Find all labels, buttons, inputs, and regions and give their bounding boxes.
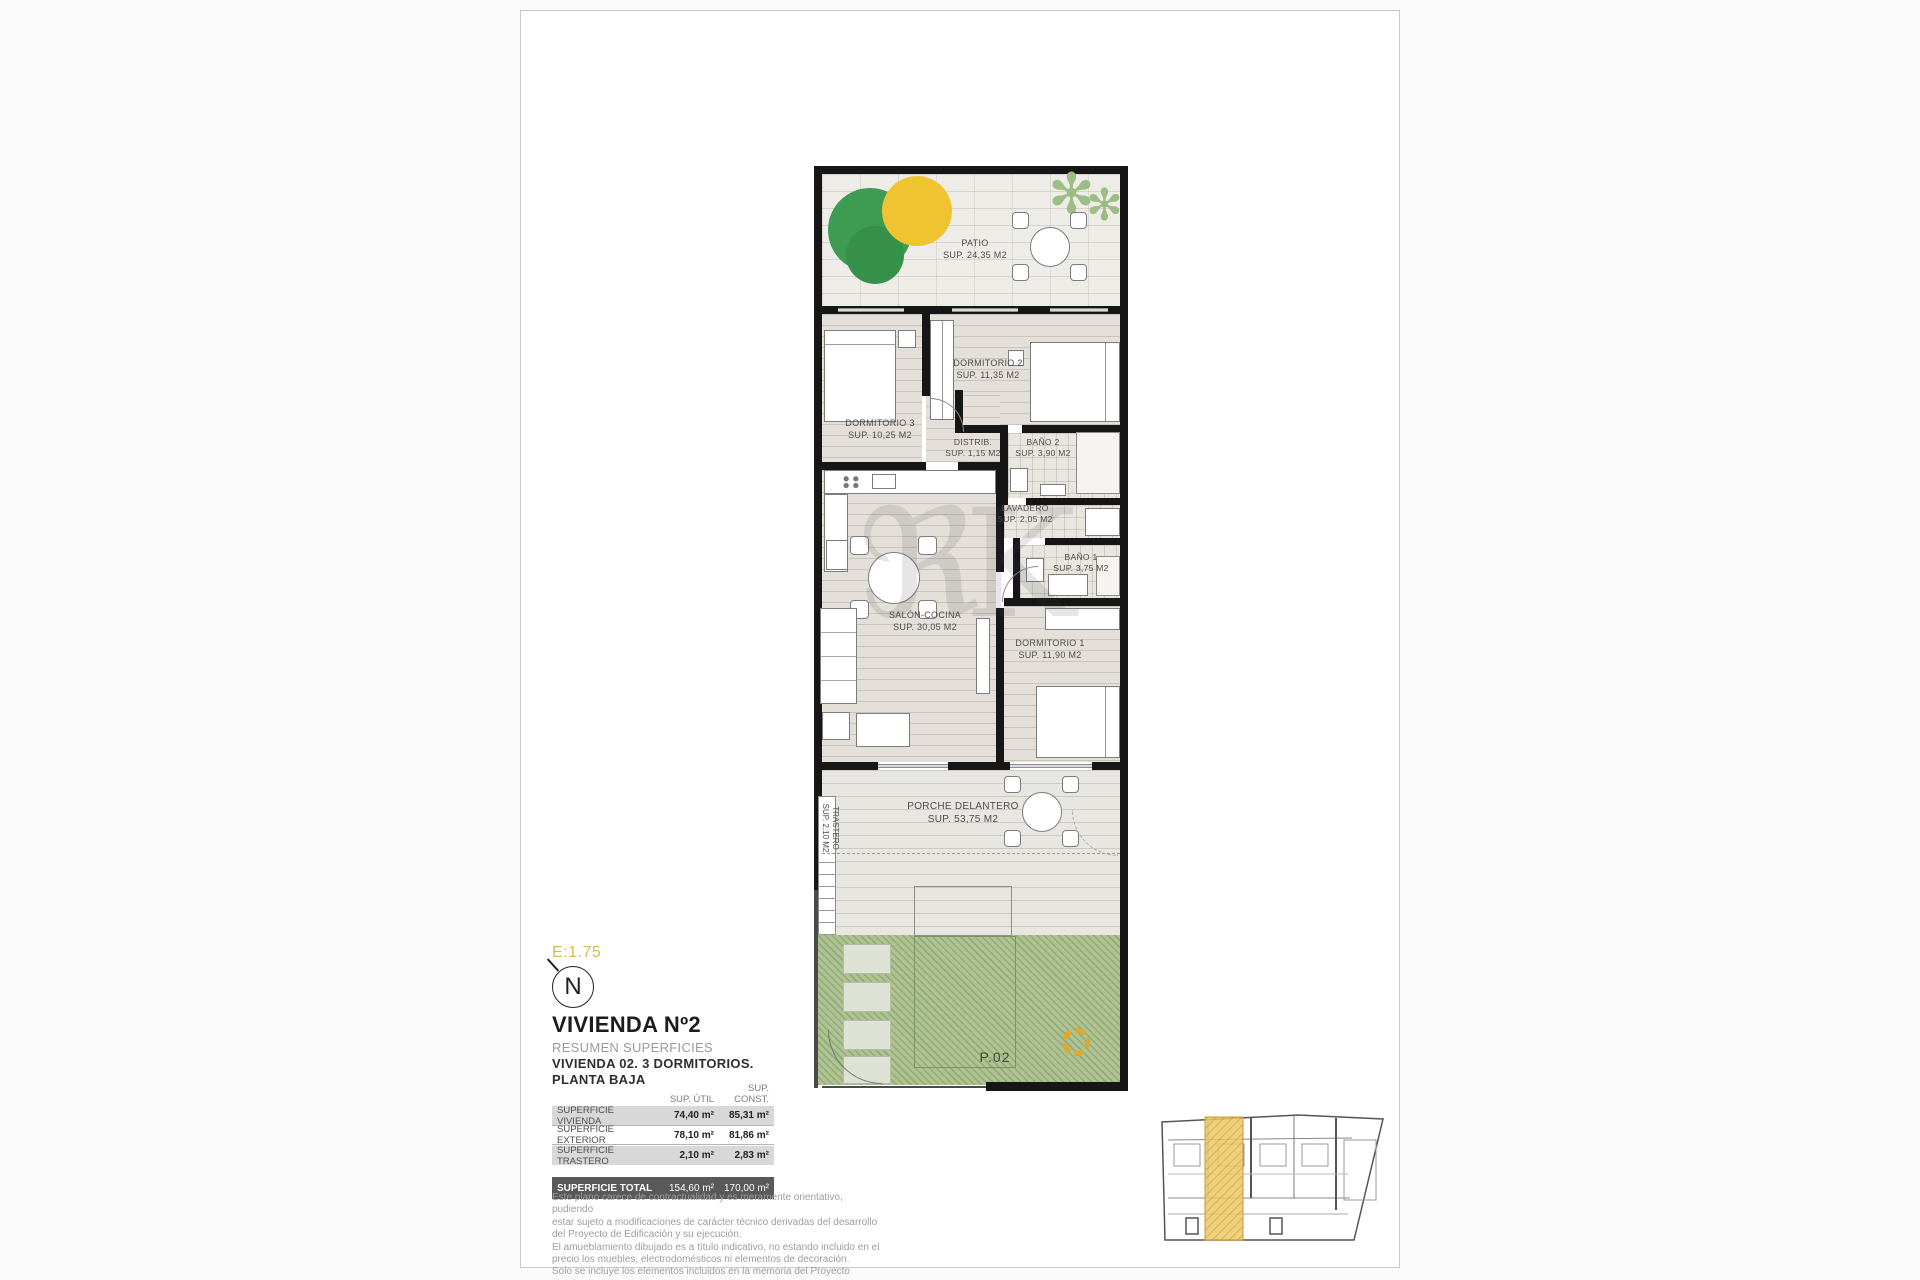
room-label-dormitorio2: DORMITORIO 2 SUP. 11,35 M2 bbox=[938, 358, 1038, 381]
row-const: 85,31 m² bbox=[714, 1110, 772, 1121]
key-plan bbox=[1148, 1100, 1400, 1248]
patio-chair bbox=[1012, 212, 1029, 229]
window-dormitorio2b bbox=[1050, 308, 1108, 312]
key-plan-highlight bbox=[1205, 1117, 1243, 1240]
subtitle-planta: PLANTA BAJA bbox=[552, 1072, 646, 1087]
wall-porche-c bbox=[1092, 762, 1128, 770]
nightstand-dorm3 bbox=[898, 330, 916, 348]
room-sup: SUP. 30,05 M2 bbox=[875, 622, 975, 634]
kitchen-sink bbox=[872, 474, 896, 489]
wall-dorm3-dorm2 bbox=[922, 310, 930, 396]
room-label-patio: PATIO SUP. 24,35 M2 bbox=[925, 238, 1025, 261]
dining-chair bbox=[850, 536, 869, 555]
bed-dormitorio2 bbox=[1030, 342, 1120, 422]
room-sup: SUP. 11,90 M2 bbox=[1000, 650, 1100, 662]
porche-chair bbox=[1004, 830, 1021, 847]
row-util: 74,40 m² bbox=[660, 1110, 714, 1121]
sofa-2 bbox=[856, 713, 910, 747]
subtitle-resumen: RESUMEN SUPERFICIES bbox=[552, 1040, 713, 1055]
window-dormitorio2 bbox=[952, 308, 1018, 312]
sofa bbox=[820, 608, 857, 704]
window-dormitorio3 bbox=[838, 308, 904, 312]
north-arrow-icon: N bbox=[552, 966, 594, 1008]
wall-garden-bottom bbox=[986, 1082, 1128, 1091]
room-name: SALÓN-COCINA bbox=[875, 610, 975, 622]
row-const: 2,83 m² bbox=[714, 1150, 772, 1161]
wall-right bbox=[1120, 166, 1128, 1090]
room-sup: SUP. 10,25 M2 bbox=[830, 430, 930, 442]
room-label-bano2: BAÑO 2 SUP. 3,90 M2 bbox=[998, 437, 1088, 459]
room-label-trastero: TRASTERO SUP. 2,10 M2 bbox=[820, 791, 840, 865]
disclaimer-line: del Proyecto de Edificación y su ejecuci… bbox=[552, 1229, 882, 1241]
patio-chair bbox=[1070, 212, 1087, 229]
row-util: 78,10 m² bbox=[660, 1130, 714, 1141]
porche-table bbox=[1022, 792, 1062, 832]
stepping-stone bbox=[843, 982, 891, 1012]
sink-bano2 bbox=[1040, 484, 1066, 496]
scale-label: E:1.75 bbox=[552, 944, 601, 962]
parcel-label: P.02 bbox=[950, 1048, 1040, 1066]
room-name: LAVADERO bbox=[980, 503, 1070, 514]
col-sup-const: SUP. CONST. bbox=[714, 1083, 772, 1105]
disclaimer-line: El amueblamiento dibujado es a título in… bbox=[552, 1242, 882, 1254]
tree-yellow bbox=[882, 176, 952, 246]
patio-chair bbox=[1012, 264, 1029, 281]
patio-chair bbox=[1070, 264, 1087, 281]
bed-dormitorio1 bbox=[1036, 686, 1120, 758]
col-sup-util: SUP. ÚTIL bbox=[660, 1094, 714, 1105]
room-sup: SUP. 2,05 M2 bbox=[980, 514, 1070, 525]
disclaimer-line: Este plano carece de contractualidad y e… bbox=[552, 1192, 882, 1217]
subtitle-vivienda: VIVIENDA 02. 3 DORMITORIOS. bbox=[552, 1056, 754, 1071]
room-label-porche: PORCHE DELANTERO SUP. 53,75 M2 bbox=[900, 800, 1026, 826]
toilet-bano2 bbox=[1010, 468, 1028, 492]
room-name: DORMITORIO 1 bbox=[1000, 638, 1100, 650]
stepping-stone bbox=[843, 944, 891, 974]
row-const: 81,86 m² bbox=[714, 1130, 772, 1141]
garden-fence bbox=[822, 1086, 986, 1088]
hob-icon bbox=[840, 474, 862, 490]
room-label-dormitorio1: DORMITORIO 1 SUP. 11,90 M2 bbox=[1000, 638, 1100, 661]
row-util: 2,10 m² bbox=[660, 1150, 714, 1161]
dining-table bbox=[868, 552, 920, 604]
room-name: TRASTERO bbox=[830, 791, 840, 865]
room-name: BAÑO 2 bbox=[998, 437, 1088, 448]
room-sup: SUP. 53,75 M2 bbox=[900, 813, 1026, 826]
surface-table: SUP. ÚTIL SUP. CONST. SUPERFICIE VIVIEND… bbox=[552, 1090, 774, 1199]
surface-table-header: SUP. ÚTIL SUP. CONST. bbox=[552, 1090, 774, 1105]
disclaimer-line: Solo se incluye los elementos incluidos … bbox=[552, 1266, 882, 1280]
north-letter: N bbox=[564, 973, 581, 1001]
parcel-number: P.02 bbox=[950, 1048, 1040, 1066]
table-row: SUPERFICIE EXTERIOR 78,10 m² 81,86 m² bbox=[552, 1125, 774, 1145]
washing-machine bbox=[1085, 508, 1120, 536]
room-sup: SUP. 2,10 M2 bbox=[820, 791, 830, 865]
room-sup: SUP. 3,90 M2 bbox=[998, 448, 1088, 459]
disclaimer-text: Este plano carece de contractualidad y e… bbox=[552, 1192, 882, 1280]
porche-chair bbox=[1062, 830, 1079, 847]
wall-left bbox=[814, 166, 822, 890]
room-sup: SUP. 3,75 M2 bbox=[1036, 563, 1126, 574]
room-name: DORMITORIO 2 bbox=[938, 358, 1038, 370]
room-label-dormitorio3: DORMITORIO 3 SUP. 10,25 M2 bbox=[830, 418, 930, 441]
room-sup: SUP. 11,35 M2 bbox=[938, 370, 1038, 382]
table-row: SUPERFICIE VIVIENDA 74,40 m² 85,31 m² bbox=[552, 1105, 774, 1125]
wall-lavadero-bano1 bbox=[1045, 538, 1128, 545]
porche-chair bbox=[1004, 776, 1021, 793]
porche-dashed-line bbox=[822, 853, 1120, 854]
dining-chair bbox=[918, 536, 937, 555]
page-title: VIVIENDA Nº2 bbox=[552, 1012, 701, 1038]
tv-unit bbox=[976, 618, 990, 694]
bed-dormitorio3 bbox=[824, 330, 896, 422]
patio-table bbox=[1030, 227, 1070, 267]
row-label: SUPERFICIE TRASTERO bbox=[552, 1145, 660, 1167]
wall-porche-b bbox=[948, 762, 1010, 770]
row-label: SUPERFICIE EXTERIOR bbox=[552, 1124, 660, 1146]
window-dorm1-porche bbox=[1010, 764, 1092, 768]
disclaimer-line: estar sujeto a modificaciones de carácte… bbox=[552, 1217, 882, 1229]
porche-step-outline bbox=[914, 886, 1012, 936]
palm-icon-2: ✻ bbox=[1086, 184, 1123, 228]
table-row: SUPERFICIE TRASTERO 2,10 m² 2,83 m² bbox=[552, 1145, 774, 1165]
kitchen-cabinet bbox=[826, 540, 848, 570]
wardrobe-dorm1 bbox=[1045, 608, 1120, 630]
sink-bano1 bbox=[1048, 574, 1088, 596]
wall-salon-right-b bbox=[996, 608, 1004, 765]
porche-chair bbox=[1062, 776, 1079, 793]
sliding-door-salon bbox=[878, 764, 948, 768]
armchair bbox=[822, 712, 850, 740]
room-name: BAÑO 1 bbox=[1036, 552, 1126, 563]
room-label-salon: SALÓN-COCINA SUP. 30,05 M2 bbox=[875, 610, 975, 633]
room-label-lavadero: LAVADERO SUP. 2,05 M2 bbox=[980, 503, 1070, 525]
trastero-shelves bbox=[818, 862, 836, 935]
canvas: ✻ ✻ bbox=[0, 0, 1920, 1280]
wall-porche-a bbox=[814, 762, 878, 770]
key-plan-outline bbox=[1162, 1115, 1383, 1240]
room-name: DORMITORIO 3 bbox=[830, 418, 930, 430]
room-name: PATIO bbox=[925, 238, 1025, 250]
garden-symbol-icon bbox=[1062, 1028, 1090, 1056]
room-label-bano1: BAÑO 1 SUP. 3,75 M2 bbox=[1036, 552, 1126, 574]
wall-dorm3-salon bbox=[814, 462, 926, 470]
disclaimer-line: precio los muebles, electrodomésticos ni… bbox=[552, 1254, 882, 1266]
room-name: PORCHE DELANTERO bbox=[900, 800, 1026, 813]
room-sup: SUP. 24,35 M2 bbox=[925, 250, 1025, 262]
